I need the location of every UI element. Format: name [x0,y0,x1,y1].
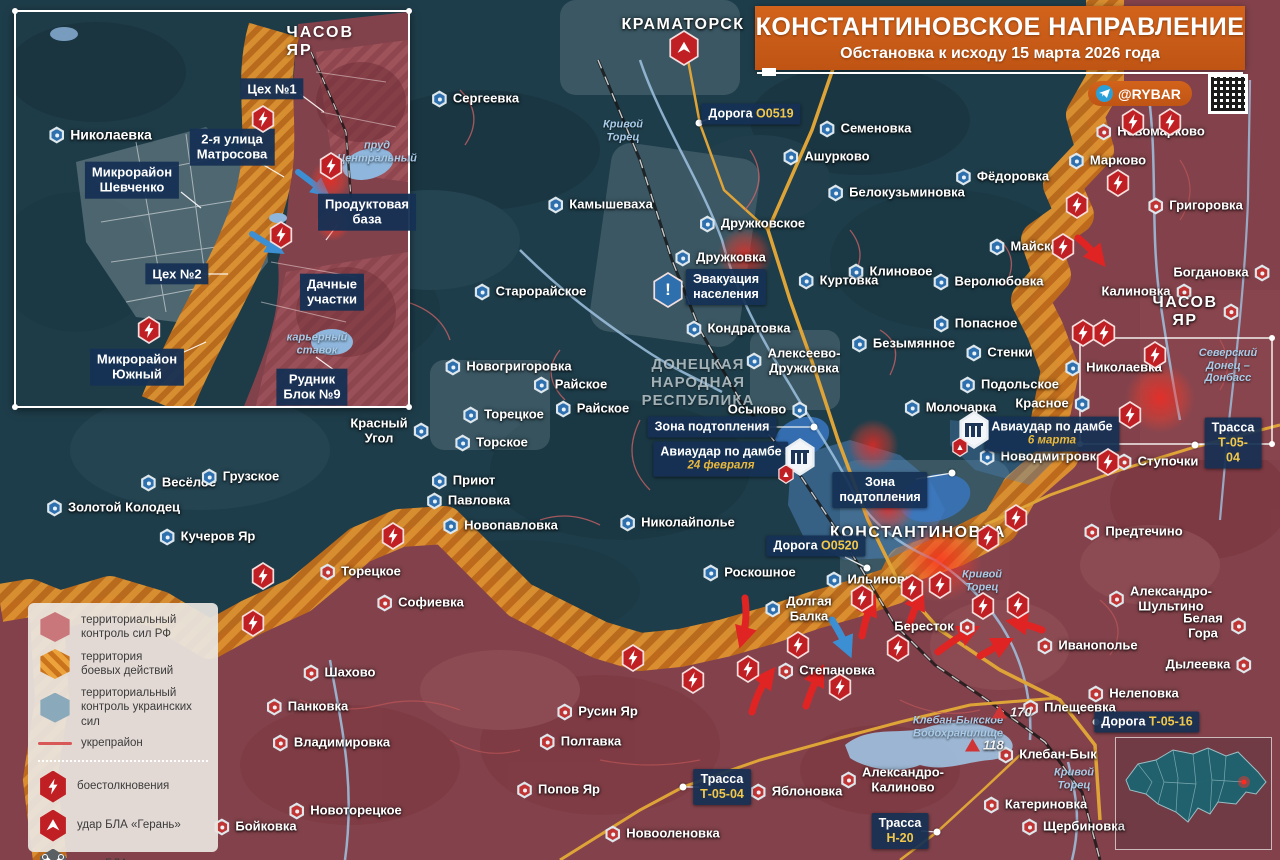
settlement-marker [989,239,1006,256]
pin-dot [469,413,473,417]
dam-wall [965,423,983,437]
inset-place-badge: Цех №1 [240,78,303,99]
ukraine-shape [1116,738,1271,849]
settlement-label: Куртовка [798,273,879,290]
settlement-name: Райское [577,402,629,417]
settlement-label: Подольское [959,377,1059,394]
settlement-label: Приют [431,473,495,490]
settlement-marker [983,797,1000,814]
zone-swatch-rf [38,612,72,642]
road-type: Дорога [1101,715,1149,729]
combat-clash-icon [970,592,996,620]
settlement-marker [556,704,573,721]
legend-item-rf: территориальный контроль сил РФ [38,612,208,642]
settlement-label: Сергеевка [431,91,519,108]
settlement-name: Предтечино [1105,525,1182,540]
strike-glyph: ▲ [956,442,965,452]
settlement-marker [288,803,305,820]
settlement-name: Попасное [955,317,1018,332]
pin-dot [939,322,943,326]
settlement-name: Торецкое [484,408,544,423]
road-number: Т-05-04 [700,787,744,801]
settlement-marker [619,515,636,532]
settlement-label: Владимировка [272,735,390,752]
combat-clash-icon [1091,319,1117,347]
settlement-label: Николайполье [619,515,735,532]
settlement-label: Бойковка [213,819,296,836]
road-type: Трасса [701,772,744,786]
settlement-name: Нелеповка [1109,687,1178,702]
water-label: Кривой Торец [962,568,1002,593]
event-point [811,424,818,431]
pin-dot [539,383,543,387]
pin-dot [1237,624,1241,628]
map-title: КОНСТАНТИНОВСКОЕ НАПРАВЛЕНИЕ [756,13,1245,42]
pin-dot [1028,825,1032,829]
settlement-name: Клебан-Бык [1019,748,1096,763]
settlement-label: Панковка [266,699,348,716]
pin-dot [220,825,224,829]
inset-corner-dot [406,8,412,14]
settlement-marker [1230,618,1247,635]
settlement-name: Марково [1090,154,1146,169]
road-type: Дорога [708,107,756,121]
settlement-marker [791,402,808,419]
settlement-marker [159,529,176,546]
exclamation-icon: ! [665,280,671,300]
settlement-marker [319,564,336,581]
legend-icon-clash [38,771,68,803]
pin-dot [523,788,527,792]
pin-dot [985,455,989,459]
settlement-name: Красное [1015,397,1068,412]
settlement-label: Белокузьминовка [827,185,965,202]
settlement-name: Камышеваха [569,198,653,213]
settlement-marker [959,377,976,394]
settlement-name: Панковка [288,700,348,715]
settlement-marker [1074,396,1091,413]
settlement-name: Красный Угол [350,416,407,445]
pin-dot [1229,310,1233,314]
height-value: 170 [1010,705,1032,720]
settlement-name: Осыково [728,403,786,418]
settlement-name: Полтавка [561,735,622,750]
road-number: Н-20 [886,831,913,845]
legend-label: удар БЛА «Герань» [77,818,181,832]
road-point [864,565,871,572]
settlement-name: Софиевка [398,596,464,611]
pin-dot [989,803,993,807]
scale-block [762,68,776,76]
settlement-label: Новооленовка [604,826,720,843]
pin-dot [681,256,685,260]
settlement-marker [533,377,550,394]
pin-dot [857,342,861,346]
settlement-label: Попов Яр [516,782,600,799]
settlement-name: Приют [453,474,495,489]
inset-place-badge: Дачные участки [300,274,364,311]
settlement-name: Павловка [448,494,510,509]
road-badge: Трасса Т-05-04 [693,769,751,805]
road-number: Т-05-16 [1149,715,1193,729]
combat-clash-icon [849,584,875,612]
settlement-name: Ступочки [1138,455,1199,470]
settlement-label: Веролюбовка [932,274,1043,291]
event-text: Эвакуация населения [693,272,759,301]
height-marker: 170 [992,705,1032,720]
settlement-label: Нелеповка [1087,686,1178,703]
legend-icon-uav [38,849,68,860]
pin-dot [383,601,387,605]
qr-code [1208,74,1248,114]
settlement-label: Торецкое [319,564,401,581]
combat-clash-icon [250,562,276,590]
pin-dot [1102,130,1106,134]
road-badge: Дорога О0519 [701,104,800,125]
combat-clash-icon [380,522,406,550]
pin-dot [563,710,567,714]
inset-place-badge: Микрорайон Шевченко [85,162,179,199]
settlement-label: Русин Яр [556,704,638,721]
settlement-marker [827,185,844,202]
combat-clash-icon [785,631,811,659]
pin-dot [847,778,851,782]
pin-dot [1115,597,1119,601]
settlement-name: Щербиновка [1043,820,1125,835]
event-point [949,470,956,477]
inset-place-badge: Рудник Блок №9 [276,369,347,406]
settlement-name: Яблоновка [772,785,843,800]
settlement-name: Бересток [894,620,953,635]
road-number: Т-05-04 [1218,436,1248,465]
settlement-label: Новомарково [1095,124,1205,141]
combat-clash-icon [827,673,853,701]
settlement-label: Шахово [303,665,376,682]
pin-dot [789,155,793,159]
event-text: Авиаудар по дамбе [660,445,781,459]
settlement-marker [764,601,781,618]
settlement-marker [699,216,716,233]
height-triangle-icon [992,706,1007,719]
combat-clash-icon [1003,504,1029,532]
inset-corner-dot [12,404,18,410]
settlement-label: Катериновка [983,797,1087,814]
pin-dot [55,133,59,137]
road-number: О0520 [821,539,859,553]
settlement-marker [904,400,921,417]
settlement-label: Торское [454,435,528,452]
legend-label: территория боевых действий [81,650,173,679]
event-text: Зона подтопления [655,420,770,434]
settlement-marker [426,493,443,510]
settlement-name: Торское [476,436,528,451]
settlement-label: Полтавка [539,734,622,751]
pin-dot [804,279,808,283]
settlement-marker [1147,198,1164,215]
fortline-swatch [38,742,72,745]
settlement-marker [819,121,836,138]
settlement-marker [547,197,564,214]
settlement-marker [376,595,393,612]
settlement-name: Клиновое [870,265,933,280]
settlement-name: Алексеево- Дружковка [768,346,841,375]
settlement-name: Новогригоровка [466,360,571,375]
settlement-marker [46,500,63,517]
road-badge: Дорога О0520 [766,536,865,557]
combat-clash-icon [1005,591,1031,619]
mini-strike-icon: ▲ [951,437,969,457]
event-text: Авиаудар по дамбе [991,420,1112,434]
pin-dot [771,607,775,611]
settlement-label: Иванополье [1036,638,1137,655]
pin-dot [480,290,484,294]
settlement-name: Иванополье [1058,639,1137,654]
settlement-name: Кучеров Яр [181,530,256,545]
settlement-label: Стенки [965,345,1032,362]
settlement-label: Ашурково [782,149,869,166]
legend-item-fort: укрепрайон [38,736,208,750]
combat-clash-icon [735,655,761,683]
settlement-marker [932,274,949,291]
combat-clash-icon [1105,169,1131,197]
pin-dot [705,222,709,226]
map-screenshot: СергеевкаКамышевахаСтарорайскоеДружковка… [0,0,1280,860]
settlement-name: Дылеевка [1166,658,1231,673]
qr-pattern [1211,77,1245,111]
combat-glow [847,419,899,471]
settlement-label: Новогригоровка [444,359,571,376]
event-badge: Авиаудар по дамбе24 февраля [653,442,788,477]
settlement-marker [1095,124,1112,141]
settlement-label: Райское [555,401,629,418]
combat-clash-icon [927,571,953,599]
settlement-marker [516,782,533,799]
settlement-label: Алексеево- Дружковка [746,346,841,375]
settlement-marker [474,284,491,301]
evacuation-icon: ! [651,272,685,308]
settlement-marker [462,407,479,424]
pin-dot [965,625,969,629]
road-number: О0519 [756,107,794,121]
settlement-label: Клебан-Бык [997,747,1096,764]
settlement-marker [1223,304,1240,321]
pin-dot [752,359,756,363]
settlement-name: Старорайское [496,285,587,300]
city-label: ЧАСОВ ЯР [1152,294,1239,330]
settlement-name: Семеновка [841,122,912,137]
rybar-credit-badge: @RYBAR [1088,81,1192,106]
legend-item-geran: удар БЛА «Герань» [38,810,208,842]
pin-dot [910,406,914,410]
combat-clash-icon [1064,191,1090,219]
pin-dot [966,383,970,387]
settlement-label: Богдановка [1173,265,1270,282]
legend-label: территориальный контроль сил РФ [81,613,176,642]
settlement-marker [685,321,702,338]
pin-dot [1080,402,1084,406]
pin-dot [461,441,465,445]
pin-dot [1154,204,1158,208]
settlement-name: Кондратовка [707,322,790,337]
pin-dot [611,832,615,836]
legend-item-clash: боестолкновения [38,771,208,803]
pin-dot [1090,530,1094,534]
settlement-label: Яблоновка [750,784,843,801]
settlement-name: Белая Гора [1181,611,1225,640]
pin-dot [834,191,838,195]
settlement-label: Новоторецкое [288,803,402,820]
settlement-name: Стенки [987,346,1032,361]
pin-dot [146,481,150,485]
settlement-marker [746,353,763,370]
settlement-name: Новооленовка [626,827,720,842]
settlement-name: Куртовка [820,274,879,289]
water-label: Северский Донец – Донбасс [1199,347,1257,385]
inset-place-badge: Цех №2 [145,263,208,284]
settlement-marker [48,127,65,144]
settlement-marker [431,91,448,108]
road-point [680,784,687,791]
combat-clash-icon [1157,108,1183,136]
settlement-label: Камышеваха [547,197,653,214]
inset-title: ЧАСОВ ЯР [287,24,368,60]
event-date: 24 февраля [660,460,781,474]
settlement-marker [933,316,950,333]
settlement-marker [272,735,289,752]
settlement-label: Красный Угол [350,416,429,445]
legend-icon-geran [38,810,68,842]
settlement-label: Долгая Балка [764,594,832,623]
settlement-label: Александро- Шультино [1108,584,1212,613]
settlement-marker [604,826,621,843]
combat-clash-icon [1095,448,1121,476]
pin-dot [451,365,455,369]
settlement-marker [1108,591,1125,608]
settlement-marker [955,169,972,186]
settlement-marker [782,149,799,166]
settlement-marker [825,572,842,589]
zone-swatch-ua [38,693,72,723]
combat-clash-icon [318,152,344,180]
settlement-marker [1068,153,1085,170]
settlement-marker [444,359,461,376]
settlement-marker [140,475,157,492]
settlement-marker [413,423,430,440]
pin-dot [309,671,313,675]
pin-dot [1242,663,1246,667]
settlement-name: Золотой Колодец [68,501,180,516]
pin-dot [295,809,299,813]
settlement-label: Софиевка [376,595,464,612]
legend-label: боестолкновения [77,779,169,793]
settlement-name: Новоторецкое [310,804,402,819]
pin-dot [326,570,330,574]
pin-dot [1260,271,1264,275]
settlement-name: Ашурково [804,150,869,165]
dam-wall [791,450,809,464]
legend-panel: территориальный контроль сил РФтерритори… [28,603,218,852]
settlement-label: Фёдоровка [955,169,1049,186]
rybar-handle: @RYBAR [1118,86,1181,102]
settlement-marker [431,473,448,490]
combat-clash-icon [620,644,646,672]
combat-clash-icon [1117,401,1143,429]
settlement-marker [1036,638,1053,655]
settlement-marker [266,699,283,716]
road-badge: Трасса Т-05-04 [1205,418,1262,469]
height-triangle-icon [965,739,980,752]
settlement-label: Попасное [933,316,1018,333]
settlement-label: Предтечино [1083,524,1182,541]
height-marker: 118 [965,738,1004,753]
settlement-name: Новопавловка [464,519,558,534]
inset-corner-dot [406,404,412,410]
divider-line [757,72,1243,74]
settlement-label: Дружковское [699,216,805,233]
settlement-label: Красное [1015,396,1090,413]
pin-dot [449,524,453,528]
settlement-marker [777,663,794,680]
settlement-name: Райское [555,378,607,393]
settlement-label: Ступочки [1116,454,1199,471]
pin-dot [272,705,276,709]
settlement-marker [674,250,691,267]
pin-dot [1122,460,1126,464]
inset-labels-layer: ЧАСОВ ЯРНиколаевкаЦех №12-я улица Матрос… [16,12,408,406]
pin-dot [437,479,441,483]
event-badge: Зона подтопления [832,472,927,508]
settlement-label: Старорайское [474,284,587,301]
settlement-name: Подольское [981,378,1059,393]
road-badge: Трасса Н-20 [872,813,929,849]
settlement-name: Фёдоровка [977,170,1049,185]
settlement-marker [555,401,572,418]
combat-clash-icon [136,316,162,344]
combat-clash-icon [975,524,1001,552]
settlement-name: Русин Яр [578,705,638,720]
pin-dot [784,669,788,673]
title-banner: КОНСТАНТИНОВСКОЕ НАПРАВЛЕНИЕ Обстановка … [755,6,1245,70]
settlement-label: Бересток [894,619,975,636]
combat-clash-icon [885,634,911,662]
settlement-marker [1254,265,1271,282]
height-value: 118 [983,738,1004,753]
road-point [1192,442,1199,449]
combat-clash-icon [680,666,706,694]
settlement-label: Степановка [777,663,875,680]
settlement-name: Александро- Калиново [862,765,944,794]
ukraine-locator-map [1115,737,1272,850]
legend-label: территориальный контроль украинских сил [81,686,208,729]
settlement-marker [750,784,767,801]
settlement-name: Новодмитровка [1001,450,1104,465]
settlement-marker [201,469,218,486]
event-badge: Зона подтопления [648,417,777,438]
dam-strike-icon: ▲ [783,438,817,476]
settlement-marker [1021,819,1038,836]
water-label: Кривой Торец [603,118,643,143]
water-label: пруд Центральный [337,139,417,164]
legend-label: укрепрайон [81,736,143,750]
settlement-name: Бойковка [235,820,296,835]
road-badge: Дорога Т-05-16 [1094,712,1199,733]
pin-dot [1094,692,1098,696]
settlement-name: Попов Яр [538,783,600,798]
settlement-name: Богдановка [1173,266,1248,281]
settlement-name: Долгая Балка [786,594,832,623]
settlement-name: Владимировка [294,736,390,751]
pin-dot [554,203,558,207]
